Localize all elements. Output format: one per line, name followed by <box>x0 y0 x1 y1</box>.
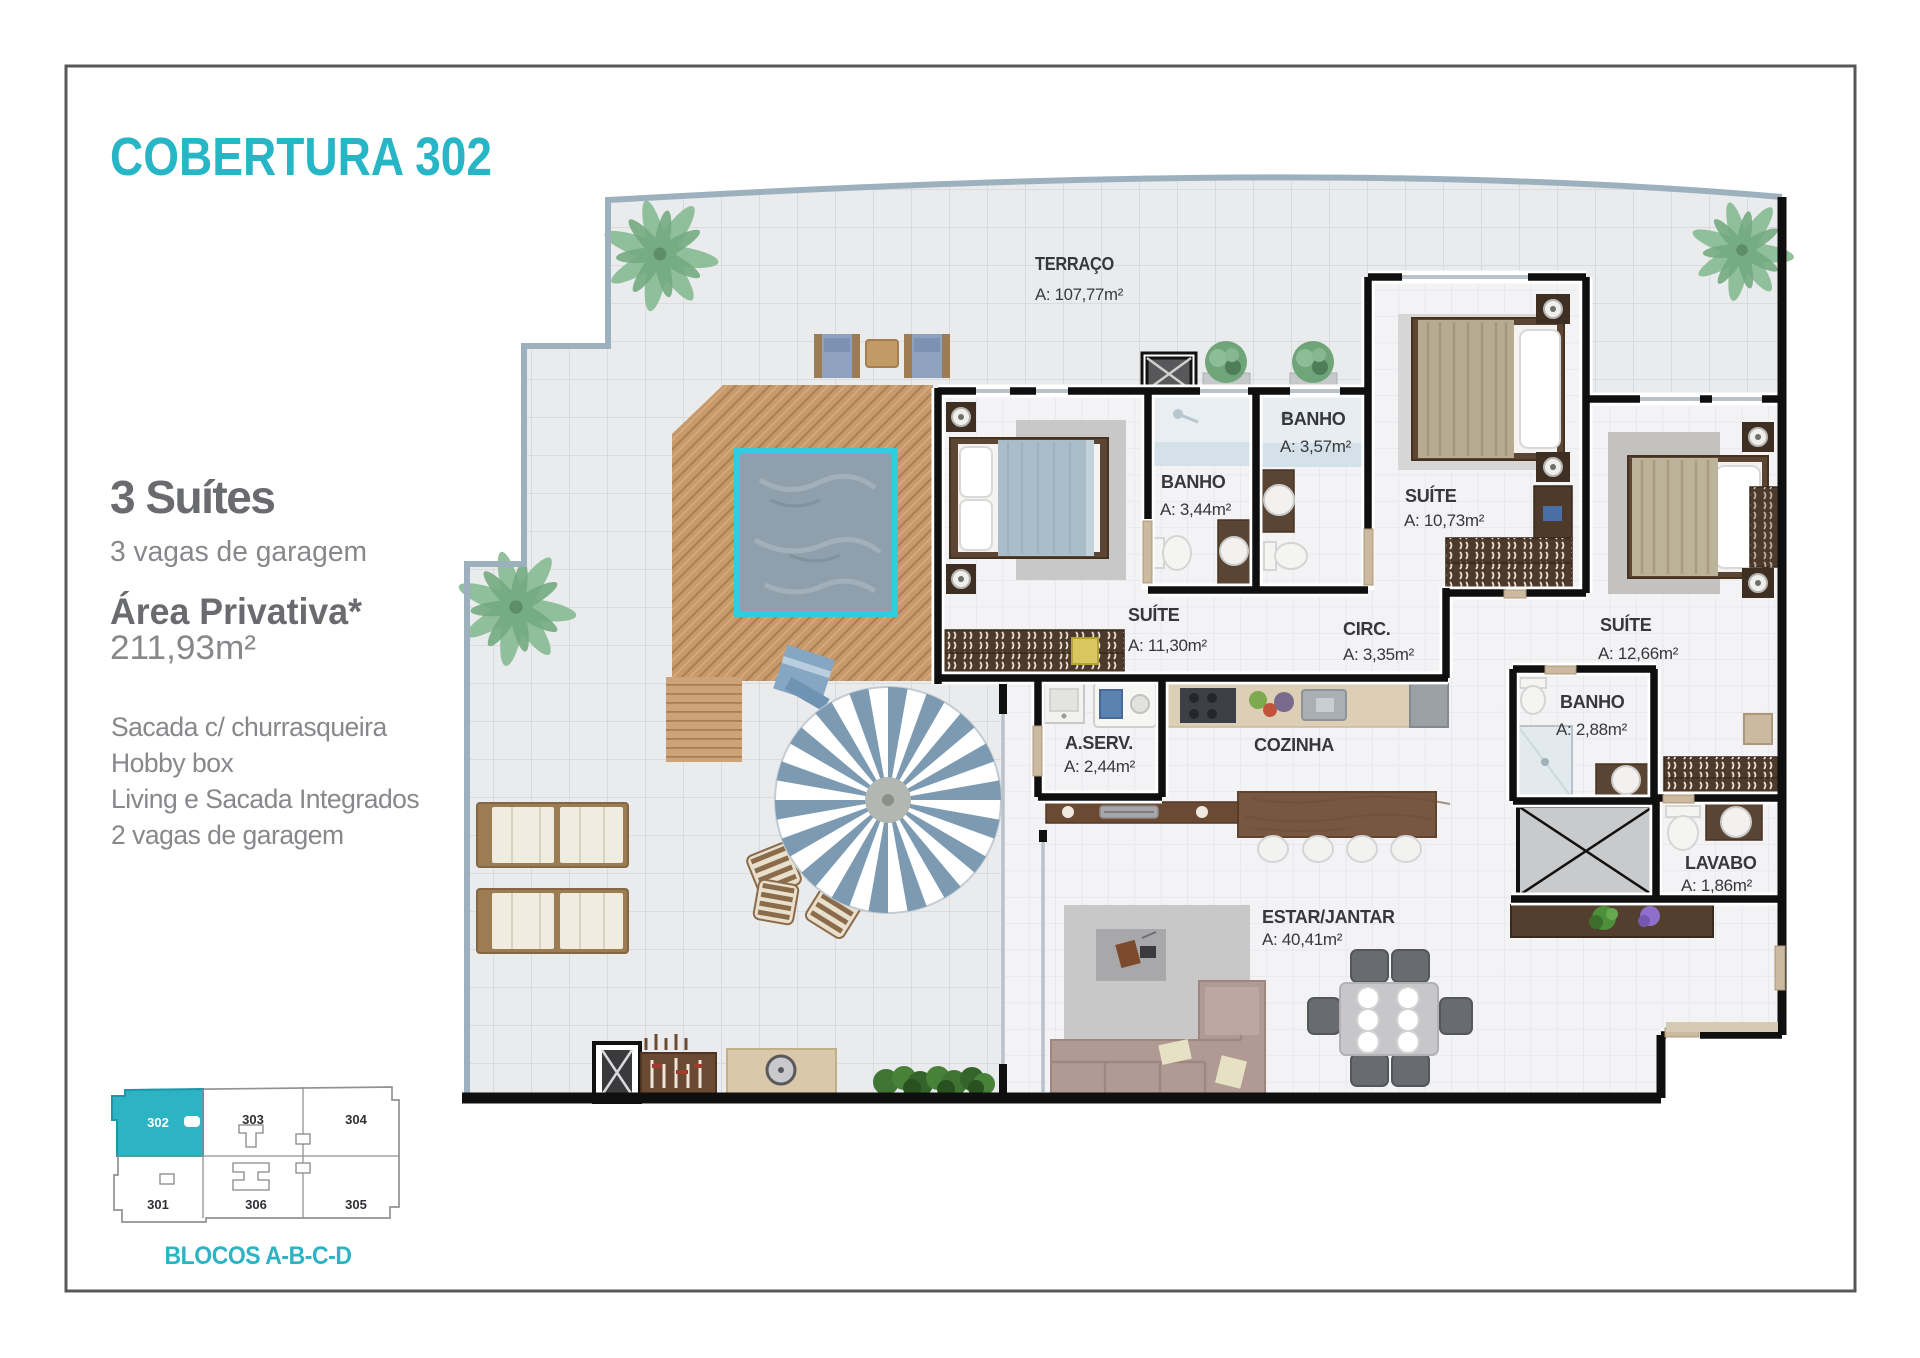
svg-text:A: 3,57m²: A: 3,57m² <box>1280 437 1352 456</box>
svg-text:Living e Sacada Integrados: Living e Sacada Integrados <box>111 784 419 814</box>
svg-text:A: 40,41m²: A: 40,41m² <box>1262 930 1343 949</box>
svg-text:SUÍTE: SUÍTE <box>1600 614 1652 635</box>
svg-text:SUÍTE: SUÍTE <box>1128 604 1180 625</box>
svg-text:A: 1,86m²: A: 1,86m² <box>1681 876 1753 895</box>
svg-text:A: 3,35m²: A: 3,35m² <box>1343 645 1415 664</box>
svg-text:COZINHA: COZINHA <box>1254 735 1334 755</box>
svg-text:BANHO: BANHO <box>1161 472 1226 492</box>
svg-text:BLOCOS A-B-C-D: BLOCOS A-B-C-D <box>165 1242 352 1270</box>
svg-text:302: 302 <box>147 1115 169 1130</box>
svg-text:2 vagas de garagem: 2 vagas de garagem <box>111 820 344 850</box>
svg-text:A: 2,44m²: A: 2,44m² <box>1064 757 1136 776</box>
svg-text:303: 303 <box>242 1112 264 1127</box>
svg-text:3 Suítes: 3 Suítes <box>110 471 274 523</box>
svg-text:A: 107,77m²: A: 107,77m² <box>1035 285 1124 304</box>
svg-text:TERRAÇO: TERRAÇO <box>1035 254 1114 274</box>
svg-text:304: 304 <box>345 1112 367 1127</box>
svg-text:Sacada c/ churrasqueira: Sacada c/ churrasqueira <box>111 712 388 742</box>
svg-text:Hobby box: Hobby box <box>111 748 233 778</box>
svg-text:3 vagas de garagem: 3 vagas de garagem <box>110 536 367 568</box>
svg-text:211,93m²: 211,93m² <box>110 629 256 667</box>
svg-text:301: 301 <box>147 1197 169 1212</box>
svg-text:BANHO: BANHO <box>1560 692 1625 712</box>
svg-text:A: 2,88m²: A: 2,88m² <box>1556 720 1628 739</box>
svg-text:A: 12,66m²: A: 12,66m² <box>1598 644 1679 663</box>
svg-text:Área Privativa*: Área Privativa* <box>110 591 363 632</box>
svg-text:BANHO: BANHO <box>1281 409 1346 429</box>
svg-text:SUÍTE: SUÍTE <box>1405 485 1457 506</box>
svg-text:ESTAR/JANTAR: ESTAR/JANTAR <box>1262 907 1395 927</box>
svg-text:306: 306 <box>245 1197 267 1212</box>
svg-text:305: 305 <box>345 1197 367 1212</box>
svg-text:A.SERV.: A.SERV. <box>1065 733 1133 753</box>
svg-text:A: 11,30m²: A: 11,30m² <box>1128 636 1208 655</box>
svg-text:COBERTURA 302: COBERTURA 302 <box>110 127 492 187</box>
svg-text:A: 10,73m²: A: 10,73m² <box>1404 511 1485 530</box>
svg-text:CIRC.: CIRC. <box>1343 619 1391 639</box>
svg-text:LAVABO: LAVABO <box>1685 853 1757 873</box>
svg-text:A: 3,44m²: A: 3,44m² <box>1160 500 1232 519</box>
